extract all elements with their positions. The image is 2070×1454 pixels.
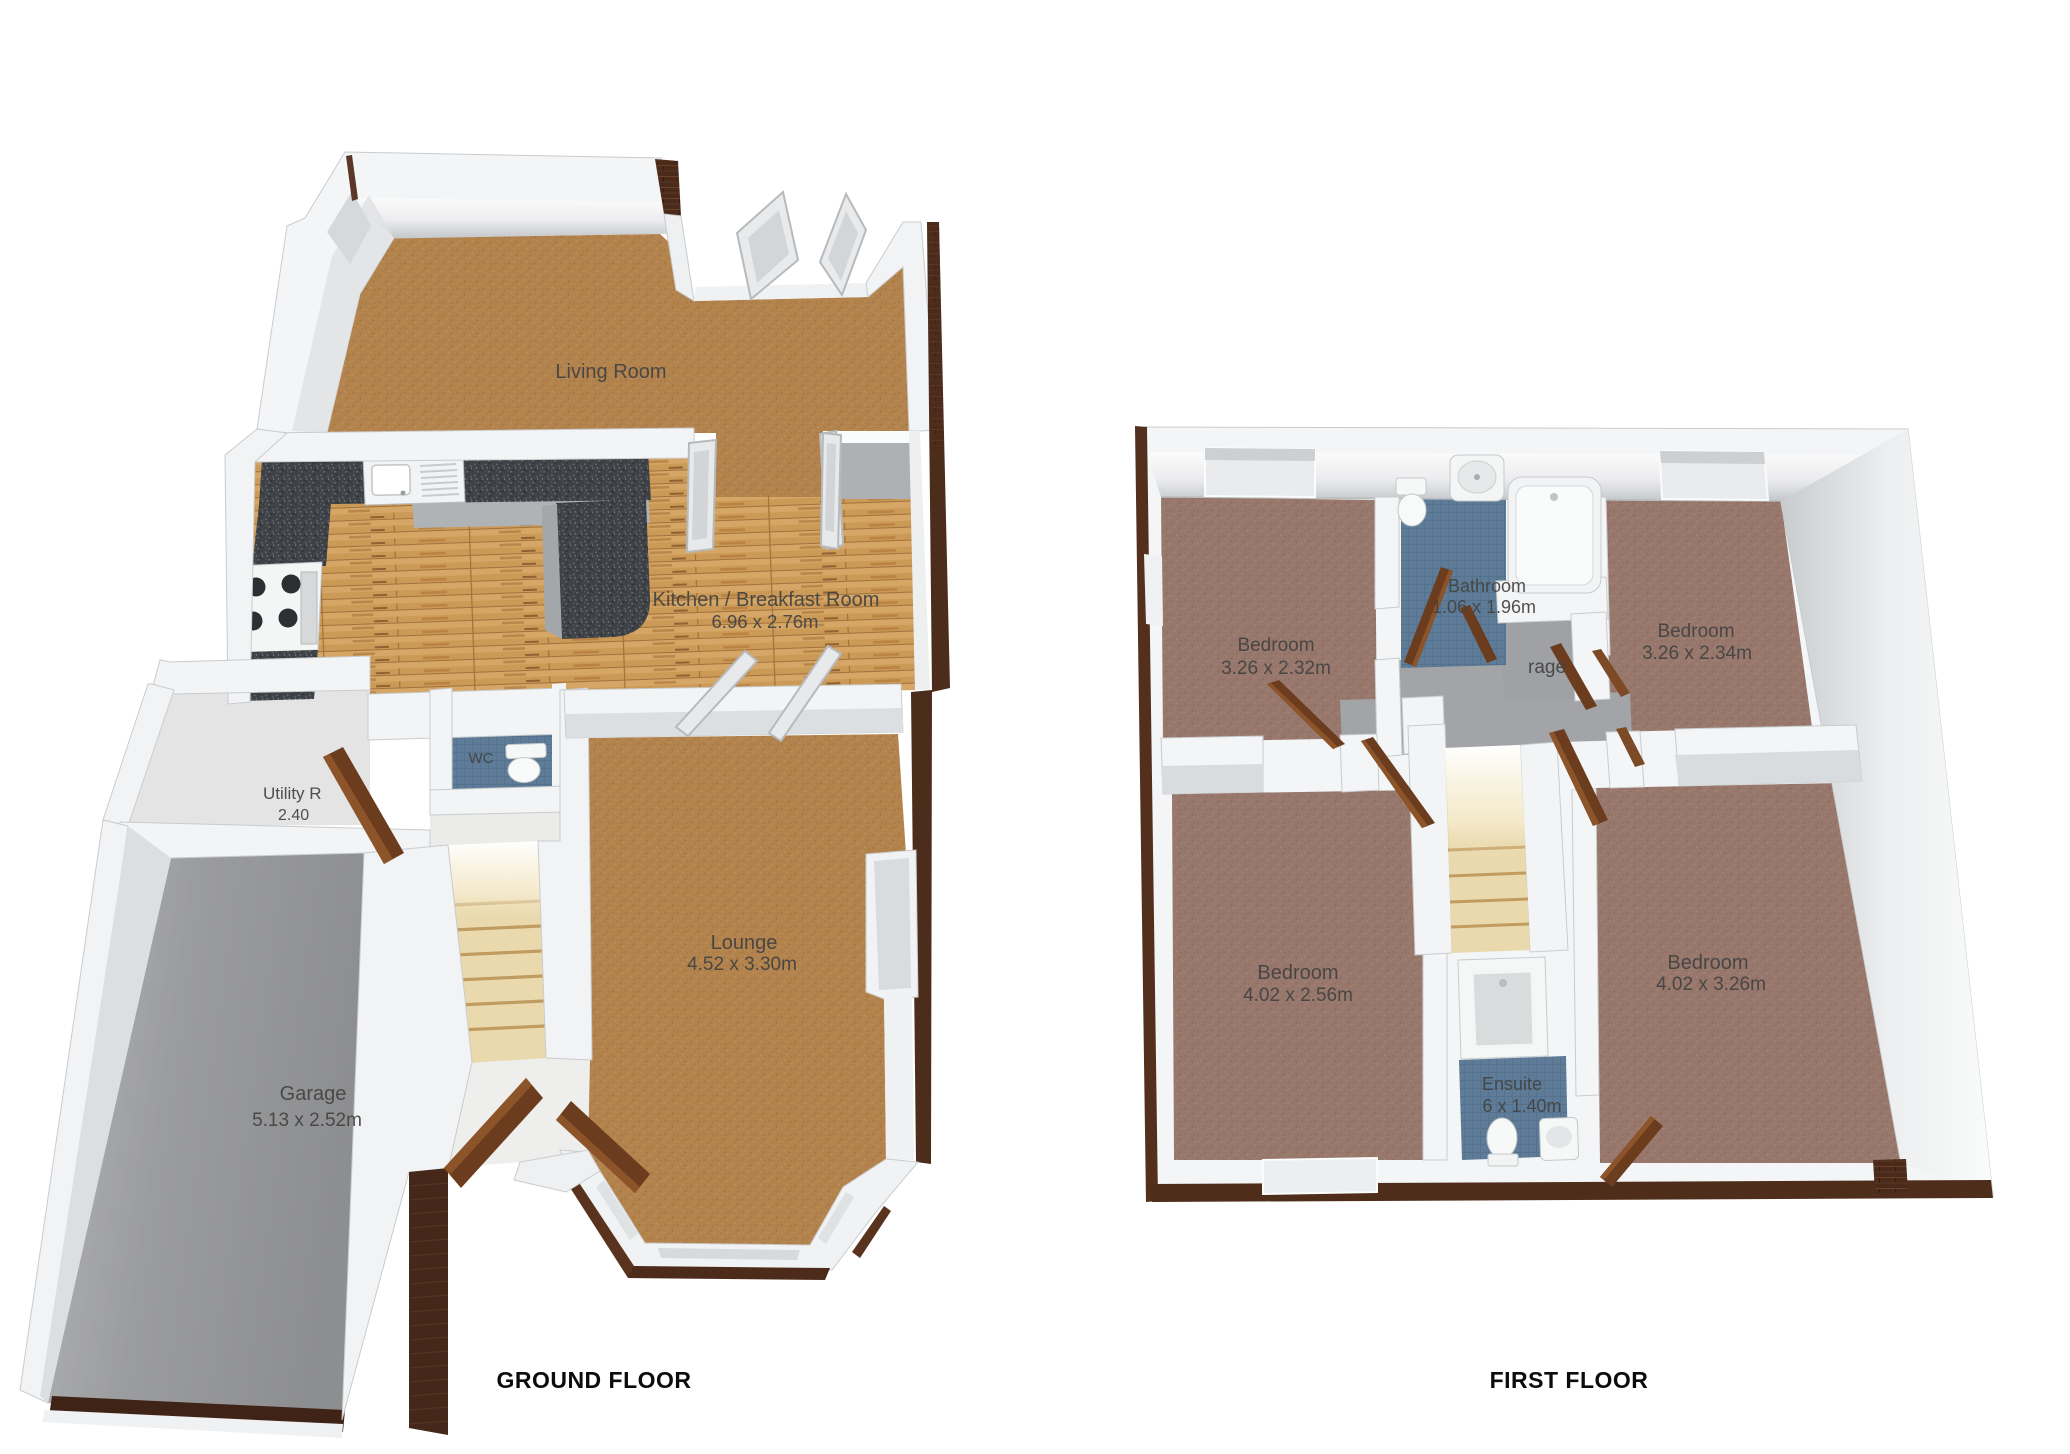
svg-text:5.13 x 2.52m: 5.13 x 2.52m (252, 1110, 362, 1131)
svg-text:Living Room: Living Room (555, 361, 666, 383)
svg-text:WC: WC (469, 750, 494, 767)
svg-text:Bedroom: Bedroom (1257, 962, 1338, 984)
svg-text:Garage: Garage (280, 1083, 347, 1105)
svg-text:1.06 x 1.96m: 1.06 x 1.96m (1432, 597, 1536, 617)
svg-text:6.96 x 2.76m: 6.96 x 2.76m (712, 611, 819, 632)
svg-text:4.02 x 2.56m: 4.02 x 2.56m (1243, 985, 1353, 1006)
svg-text:Utility R: Utility R (263, 784, 322, 803)
svg-text:6 x 1.40m: 6 x 1.40m (1482, 1096, 1561, 1116)
svg-text:4.52 x 3.30m: 4.52 x 3.30m (687, 954, 797, 975)
svg-text:Bedroom: Bedroom (1237, 635, 1314, 656)
svg-text:3.26 x 2.34m: 3.26 x 2.34m (1642, 643, 1752, 664)
svg-text:4.02 x 3.26m: 4.02 x 3.26m (1656, 974, 1766, 995)
svg-text:Bedroom: Bedroom (1667, 952, 1748, 974)
svg-text:rage: rage (1528, 657, 1566, 678)
svg-text:FIRST FLOOR: FIRST FLOOR (1490, 1367, 1649, 1393)
svg-text:Bedroom: Bedroom (1657, 621, 1734, 642)
svg-text:Kitchen / Breakfast Room: Kitchen / Breakfast Room (653, 589, 880, 611)
svg-text:3.26 x 2.32m: 3.26 x 2.32m (1221, 658, 1331, 679)
svg-text:Ensuite: Ensuite (1482, 1074, 1542, 1094)
svg-text:Lounge: Lounge (711, 932, 778, 954)
svg-text:GROUND FLOOR: GROUND FLOOR (496, 1367, 691, 1393)
svg-text:Bathroom: Bathroom (1448, 576, 1526, 596)
svg-text:2.40: 2.40 (278, 807, 309, 824)
